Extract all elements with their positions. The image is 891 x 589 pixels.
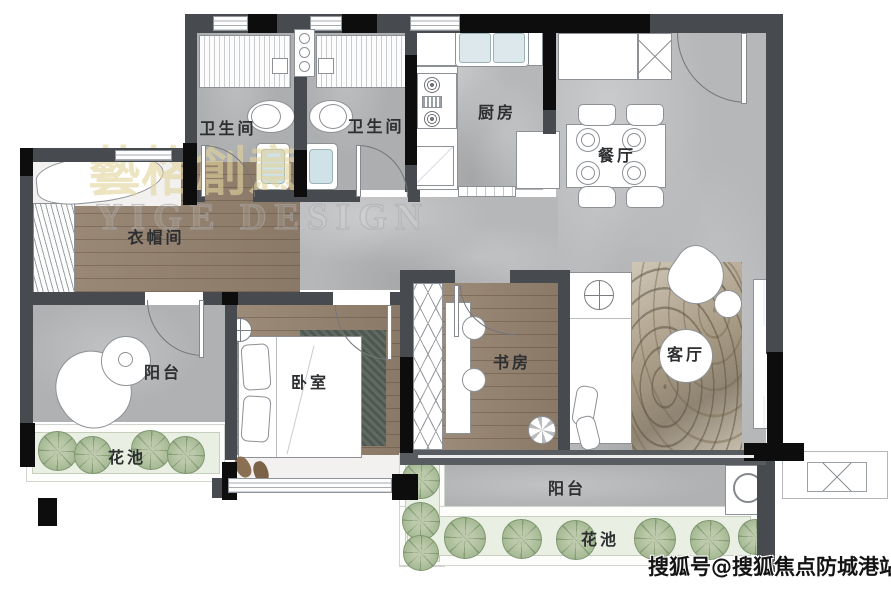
wall-right: [766, 14, 783, 354]
sink-basin: [309, 149, 333, 184]
pillar-black: [38, 498, 57, 526]
wall-bath-kitchen-black: [405, 55, 417, 165]
pillow: [240, 395, 271, 443]
dining-chair: [626, 186, 664, 208]
dining-chair: [626, 104, 664, 126]
wall-kitchen-dining-black: [543, 20, 556, 110]
kitchen-sink-basin: [459, 33, 491, 63]
wall-bath-left: [185, 26, 197, 146]
wall-bedroom-study: [400, 270, 413, 357]
place-setting-icon: [627, 166, 641, 180]
pillow: [240, 343, 271, 391]
window: [115, 150, 172, 161]
study-door-leaf: [454, 285, 459, 337]
wall-balcony-left: [20, 305, 33, 425]
bedroom-window: [228, 478, 392, 493]
ceiling-fan-icon: [528, 416, 556, 444]
dining-chair: [578, 104, 616, 126]
wall-study-north: [412, 270, 455, 283]
wall-mid-black: [222, 292, 238, 305]
sideboard: [516, 131, 560, 189]
side-table-decor-icon: [118, 352, 133, 367]
ottoman: [714, 290, 742, 318]
bedroom-door-leaf: [387, 305, 392, 360]
plant-icon: [38, 431, 78, 471]
room-label-flowerbed-left: 花池: [104, 449, 150, 467]
door-leaf: [201, 145, 206, 197]
wall-bath-divider-black: [294, 150, 307, 197]
wall-bath-left-black: [183, 143, 197, 205]
wall-bedroom-window-black: [392, 474, 418, 500]
burner-icon: [424, 111, 440, 127]
room-label-living: 客厅: [663, 345, 709, 365]
door-leaf: [356, 145, 361, 197]
burner-icon: [424, 77, 440, 93]
desk-chair: [462, 368, 486, 392]
entry-door-leaf: [741, 33, 747, 104]
plant-icon: [502, 519, 542, 559]
wall-left-black: [20, 148, 33, 176]
room-label-bathroom-right: 卫生间: [348, 118, 404, 136]
floorplan-canvas: 卫生间 卫生间 厨房 餐厅 衣帽间 阳台 花池 卧室 书房 客厅 阳台 花池 藝…: [0, 0, 891, 589]
kitchen-sliding-door: [458, 186, 516, 197]
bed-headboard-line: [276, 337, 277, 457]
wall-balcony-left-black: [20, 423, 35, 467]
sliding-window-line: [418, 455, 754, 458]
room-label-balcony-left: 阳台: [143, 364, 183, 382]
plant-icon: [444, 517, 486, 559]
wardrobe-hangers: [33, 203, 75, 295]
shaft-circle-icon: [299, 61, 310, 72]
room-label-kitchen: 厨房: [471, 103, 523, 123]
wall-bedroom-study-black: [400, 357, 413, 453]
wall-top-black: [248, 14, 277, 33]
room-label-dining: 餐厅: [591, 145, 643, 167]
wall-mid-horizontal: [20, 292, 145, 305]
bookshelf: [413, 283, 443, 450]
wall-cross-black: [744, 443, 804, 461]
room-label-flowerbed-south: 花池: [577, 531, 623, 549]
toilet-seat-icon: [319, 104, 347, 129]
plant-icon: [403, 535, 439, 571]
room-label-balcony-south: 阳台: [547, 480, 587, 498]
wall-kitchen-dining: [543, 108, 556, 134]
sofa-table-icon: [584, 280, 614, 310]
watermark-sohu: 搜狐号@搜狐焦点防城港站: [648, 554, 891, 581]
stove-grill: [422, 96, 442, 108]
dining-chair: [578, 186, 616, 208]
wall-bedroom-west: [225, 305, 237, 460]
place-setting-icon: [581, 166, 595, 180]
shaft-circle-icon: [299, 47, 310, 58]
balcony-door-leaf: [199, 300, 204, 358]
fridge-icon: [414, 146, 454, 186]
sofa-divider-line: [569, 318, 631, 319]
room-label-bathroom-left: 卫生间: [200, 120, 256, 138]
living-window-strip: [762, 326, 766, 396]
window: [213, 16, 248, 31]
shaft-box-icon: [638, 33, 672, 80]
wall-study-north: [510, 270, 570, 283]
faucet-icon: [272, 58, 288, 74]
entry-cabinet: [558, 33, 638, 80]
shaft-circle-icon: [299, 33, 310, 44]
room-label-cloakroom: 衣帽间: [126, 229, 186, 247]
room-label-bedroom: 卧室: [287, 374, 333, 392]
room-label-study: 书房: [489, 354, 535, 372]
kitchen-sink-basin: [493, 33, 525, 63]
ac-unit-x-icon: [807, 462, 867, 492]
faucet-icon: [318, 58, 334, 74]
wall-top-black: [342, 14, 377, 33]
wall-study-living: [558, 283, 570, 453]
window: [410, 16, 460, 31]
plant-icon: [167, 436, 205, 474]
